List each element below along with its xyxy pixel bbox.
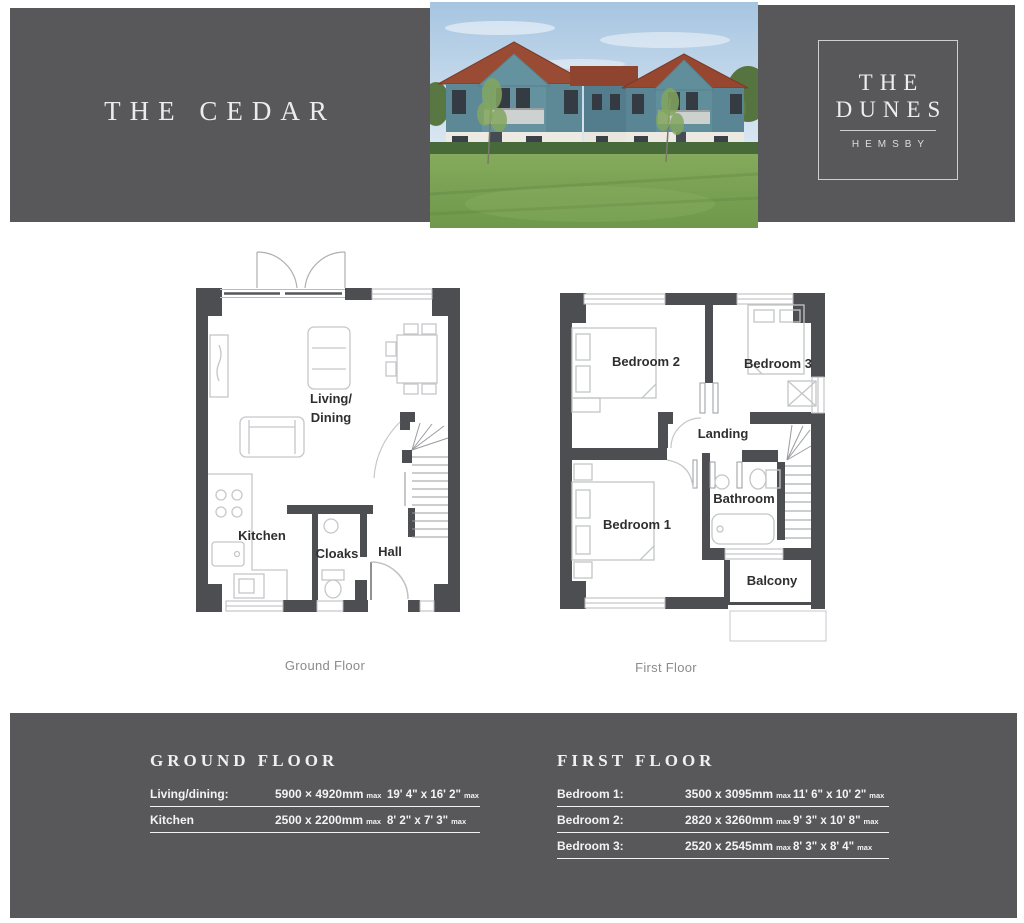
first-floor-caption: First Floor [566,660,766,675]
imperial-dimensions: 8' 2" x 7' 3"max [387,815,480,827]
ground-floor-heading: GROUND FLOOR [150,751,338,771]
table-row: Bedroom 1: 3500 x 3095mmmax 11' 6" x 10'… [557,781,889,807]
table-row: Bedroom 3: 2520 x 2545mmmax 8' 3" x 8' 4… [557,833,889,859]
imperial-dimensions: 11' 6" x 10' 2"max [793,789,889,801]
metric-dimensions: 5900 × 4920mmmax [275,787,387,801]
development-photo [430,2,758,228]
metric-dimensions: 2820 x 3260mmmax [685,813,793,827]
brand-logo: THE DUNES HEMSBY [818,40,958,180]
room-label-landing: Landing [698,426,749,441]
table-row: Living/dining: 5900 × 4920mmmax 19' 4" x… [150,781,480,807]
first-floor-heading: FIRST FLOOR [557,751,715,771]
table-row: Bedroom 2: 2820 x 3260mmmax 9' 3" x 10' … [557,807,889,833]
room-name: Bedroom 1: [557,787,685,801]
metric-dimensions: 2500 x 2200mmmax [275,813,387,827]
room-label-living-2: Dining [311,410,351,425]
front-door [371,562,408,600]
room-name: Bedroom 3: [557,839,685,853]
room-name: Bedroom 2: [557,813,685,827]
room-name: Living/dining: [150,787,275,801]
room-name: Kitchen [150,813,275,827]
brand-divider [840,130,936,131]
metric-dimensions: 3500 x 3095mmmax [685,787,793,801]
metric-dimensions: 2520 x 2545mmmax [685,839,793,853]
staircase [785,425,811,538]
room-label-balcony: Balcony [747,573,798,588]
room-label-bathroom: Bathroom [713,491,774,506]
room-label-living-1: Living/ [310,391,352,406]
room-label-bedroom2: Bedroom 2 [612,354,680,369]
french-doors [257,252,345,288]
first-floor-plan: Bedroom 2 Bedroom 3 Landing Bathroom Bed… [558,286,834,663]
ground-floor-dimensions-table: Living/dining: 5900 × 4920mmmax 19' 4" x… [150,781,480,833]
imperial-dimensions: 9' 3" x 10' 8"max [793,815,889,827]
development-photo-render [430,2,758,228]
room-label-kitchen: Kitchen [238,528,286,543]
brand-dunes: DUNES [836,97,948,123]
dimensions-footer: GROUND FLOOR FIRST FLOOR Living/dining: … [10,713,1017,918]
room-label-hall: Hall [378,544,402,559]
ground-floor-caption: Ground Floor [225,658,425,673]
brand-the: THE [859,70,925,96]
brochure-page: THE CEDAR [0,0,1024,923]
room-label-bedroom3: Bedroom 3 [744,356,812,371]
table-row: Kitchen 2500 x 2200mmmax 8' 2" x 7' 3"ma… [150,807,480,833]
brand-location: HEMSBY [852,139,930,150]
page-title: THE CEDAR [10,96,430,127]
header-left-band: THE CEDAR [10,8,430,222]
imperial-dimensions: 19' 4" x 16' 2"max [387,789,480,801]
staircase [412,423,448,537]
room-label-bedroom1: Bedroom 1 [603,517,671,532]
header-right-band: THE DUNES HEMSBY [758,5,1015,222]
room-label-cloaks: Cloaks [316,546,359,561]
first-floor-dimensions-table: Bedroom 1: 3500 x 3095mmmax 11' 6" x 10'… [557,781,889,859]
ground-floor-plan: Living/ Dining Kitchen Cloaks Hall [194,250,466,623]
imperial-dimensions: 8' 3" x 8' 4"max [793,841,889,853]
